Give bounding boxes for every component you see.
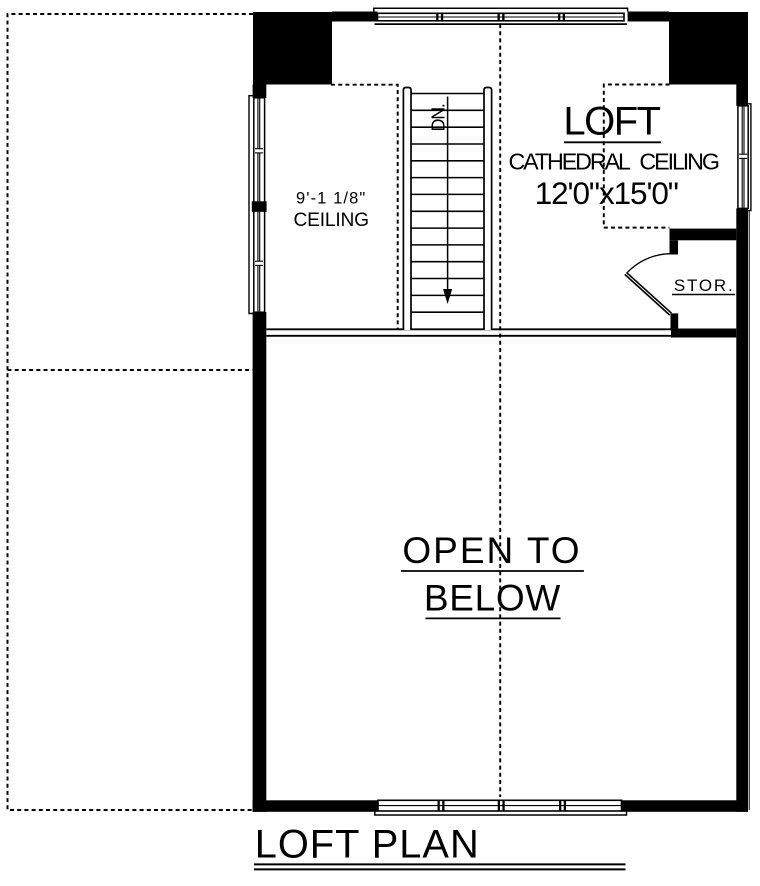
- svg-text:OPEN TO: OPEN TO: [402, 530, 581, 571]
- svg-text:12'0"x15'0": 12'0"x15'0": [535, 175, 678, 211]
- svg-text:9'-1 1/8": 9'-1 1/8": [296, 189, 366, 207]
- svg-text:CATHEDRAL CEILING: CATHEDRAL CEILING: [508, 148, 718, 174]
- svg-text:STOR.: STOR.: [674, 276, 735, 295]
- svg-text:DN.: DN.: [429, 104, 449, 131]
- svg-text:LOFT: LOFT: [563, 100, 660, 144]
- svg-text:BELOW: BELOW: [424, 578, 561, 619]
- svg-text:CEILING: CEILING: [294, 210, 369, 231]
- svg-text:LOFT PLAN: LOFT PLAN: [255, 823, 480, 867]
